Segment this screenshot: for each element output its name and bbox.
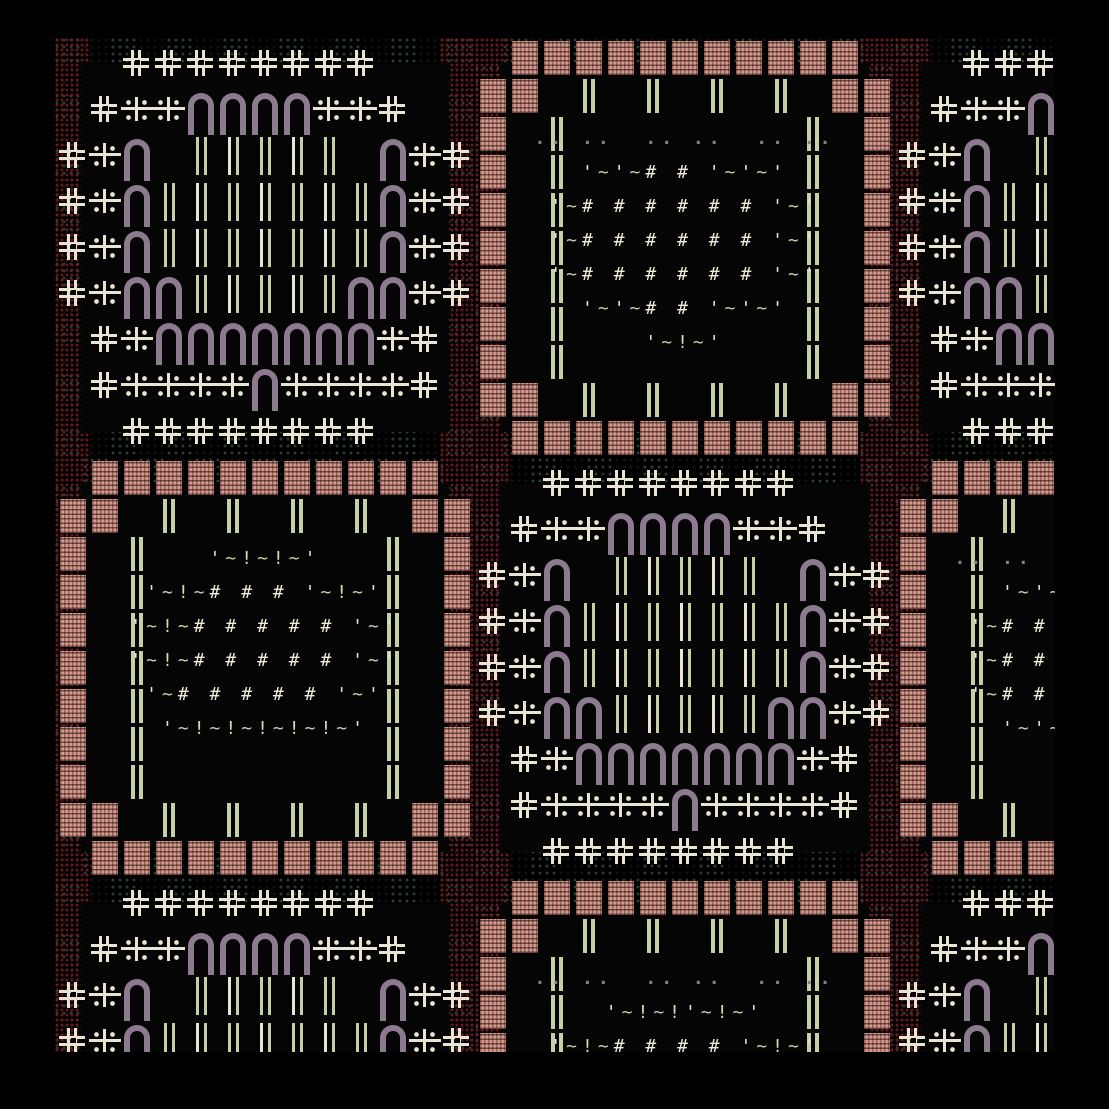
tile-hash-panel: '~!~!~''~!~# # # '~!~''~!~# # # # # '~''… xyxy=(55,458,475,878)
green-double-bar xyxy=(765,77,797,115)
pink-woven-block xyxy=(409,801,441,839)
dotted-cross-motif xyxy=(797,783,829,829)
spacer xyxy=(1025,801,1055,839)
pink-woven-block xyxy=(993,839,1025,877)
pink-woven-block xyxy=(861,77,893,115)
text-line: '~# # # # # # '~' xyxy=(923,678,1055,712)
bars-cream-motif xyxy=(217,271,249,317)
double-cross-motif xyxy=(477,645,509,691)
spacer xyxy=(861,783,893,829)
spacer xyxy=(541,77,573,115)
dotted-cross-motif xyxy=(961,87,993,133)
arch-motif xyxy=(185,87,217,133)
green-double-bar xyxy=(217,497,249,535)
bars-cream-motif xyxy=(185,225,217,271)
spacer xyxy=(797,917,829,955)
bars-cream-motif xyxy=(313,1019,345,1052)
pink-woven-block xyxy=(217,459,249,497)
spacer xyxy=(861,507,893,553)
arch-motif xyxy=(605,737,637,783)
double-cross-motif xyxy=(217,41,249,87)
double-cross-motif xyxy=(1025,409,1055,455)
pink-woven-block xyxy=(701,39,733,77)
spacer xyxy=(409,41,441,87)
text-line: '~!~!'~!~' xyxy=(503,996,867,1030)
spacer xyxy=(929,409,961,455)
bars-green-motif xyxy=(669,553,701,599)
pink-woven-block xyxy=(929,459,961,497)
double-cross-motif xyxy=(993,881,1025,927)
motif-row xyxy=(897,881,1055,927)
pink-woven-block xyxy=(637,39,669,77)
spacer xyxy=(541,917,573,955)
double-cross-motif xyxy=(345,409,377,455)
text-line: '~'~# # '~'~' xyxy=(503,292,867,326)
pink-woven-block xyxy=(929,839,961,877)
bars-green-motif xyxy=(637,645,669,691)
bars-green-motif xyxy=(701,645,733,691)
spacer xyxy=(477,879,509,917)
arch-motif xyxy=(1025,927,1055,973)
dotted-cross-motif xyxy=(121,363,153,409)
bars-cream-motif xyxy=(249,179,281,225)
double-cross-motif xyxy=(993,41,1025,87)
dotted-cross-motif xyxy=(409,179,441,225)
double-cross-motif xyxy=(477,553,509,599)
spacer xyxy=(313,497,345,535)
motif-row xyxy=(477,645,893,691)
double-cross-motif xyxy=(153,41,185,87)
double-cross-motif xyxy=(57,133,89,179)
dotted-cross-motif xyxy=(185,363,217,409)
spacer xyxy=(477,419,509,457)
bars-green-motif xyxy=(1025,133,1055,179)
double-cross-motif xyxy=(249,41,281,87)
arch-motif xyxy=(541,645,573,691)
dotted-cross-motif xyxy=(89,225,121,271)
hash-text-block: .. .. .. .. .. ..'~!~!'~!~''~!~# # # # '… xyxy=(503,962,867,1052)
pink-woven-block xyxy=(541,419,573,457)
spacer xyxy=(345,973,377,1019)
arch-motif xyxy=(637,507,669,553)
dotted-cross-motif xyxy=(573,783,605,829)
arch-motif xyxy=(377,133,409,179)
spacer xyxy=(541,381,573,419)
double-cross-motif xyxy=(477,599,509,645)
bars-cream-motif xyxy=(313,225,345,271)
pink-woven-block xyxy=(573,879,605,917)
spacer xyxy=(733,917,765,955)
spacer xyxy=(897,459,929,497)
pink-woven-block xyxy=(797,419,829,457)
pink-woven-block xyxy=(509,381,541,419)
pink-woven-block xyxy=(441,763,473,801)
spacer xyxy=(441,41,473,87)
dotted-cross-motif xyxy=(217,363,249,409)
spacer xyxy=(897,409,929,455)
pink-woven-block xyxy=(57,763,89,801)
bars-green-motif xyxy=(281,1019,313,1052)
pink-woven-block xyxy=(153,459,185,497)
double-cross-motif xyxy=(281,881,313,927)
pink-woven-block xyxy=(89,459,121,497)
tile-cross-medallion xyxy=(895,878,1055,1052)
spacer xyxy=(185,801,217,839)
motif-row xyxy=(477,77,893,115)
dotted-cross-motif xyxy=(541,783,573,829)
tile-cross-medallion xyxy=(55,878,475,1052)
arch-motif xyxy=(153,271,185,317)
motif-row xyxy=(477,783,893,829)
pink-woven-block xyxy=(961,459,993,497)
double-cross-motif xyxy=(313,409,345,455)
text-line: '~!~!~!~!~!~' xyxy=(83,712,447,746)
dotted-cross-motif xyxy=(509,645,541,691)
arch-motif xyxy=(185,317,217,363)
spacer xyxy=(57,839,89,877)
pink-woven-block xyxy=(1025,459,1055,497)
spacer xyxy=(509,829,541,875)
arch-motif xyxy=(281,317,313,363)
spacer xyxy=(733,77,765,115)
dotted-cross-motif xyxy=(377,363,409,409)
text-line: '~!~# # # # '~!~' xyxy=(503,1030,867,1052)
arch-motif xyxy=(345,317,377,363)
pink-woven-block xyxy=(765,39,797,77)
dotted-cross-motif xyxy=(929,225,961,271)
double-cross-motif xyxy=(89,363,121,409)
spacer xyxy=(669,381,701,419)
arch-motif xyxy=(797,553,829,599)
spacer xyxy=(57,927,89,973)
pink-woven-block xyxy=(961,839,993,877)
pink-woven-block xyxy=(605,419,637,457)
arch-motif xyxy=(185,927,217,973)
dotted-cross-motif xyxy=(541,737,573,783)
arch-motif xyxy=(765,737,797,783)
double-cross-motif xyxy=(345,41,377,87)
motif-row xyxy=(57,881,473,927)
motif-row xyxy=(57,87,473,133)
pink-woven-block xyxy=(57,801,89,839)
spacer xyxy=(573,553,605,599)
arch-motif xyxy=(313,317,345,363)
motif-row xyxy=(897,497,1055,535)
double-cross-motif xyxy=(733,829,765,875)
bars-green-motif xyxy=(185,973,217,1019)
bars-green-motif xyxy=(153,225,185,271)
green-double-bar xyxy=(345,497,377,535)
spacer xyxy=(345,133,377,179)
double-cross-motif xyxy=(121,409,153,455)
dotted-cross-motif xyxy=(89,1019,121,1052)
dotted-cross-motif xyxy=(313,927,345,973)
spacer xyxy=(605,381,637,419)
motif-row xyxy=(477,829,893,875)
bars-cream-motif xyxy=(313,179,345,225)
arch-motif xyxy=(377,973,409,1019)
motif-row xyxy=(897,317,1055,363)
spacer xyxy=(441,459,473,497)
text-line: '~!~# # # # # '~' xyxy=(83,644,447,678)
double-cross-motif xyxy=(897,271,929,317)
dotted-cross-motif xyxy=(733,783,765,829)
double-cross-motif xyxy=(861,599,893,645)
motif-row xyxy=(897,363,1055,409)
spacer xyxy=(441,927,473,973)
motif-row xyxy=(477,879,893,917)
pink-woven-block xyxy=(829,77,861,115)
motif-row xyxy=(57,363,473,409)
spacer xyxy=(861,737,893,783)
bars-green-motif xyxy=(573,645,605,691)
spacer xyxy=(897,881,929,927)
double-cross-motif xyxy=(377,927,409,973)
pink-woven-block xyxy=(637,879,669,917)
dotted-cross-motif xyxy=(733,507,765,553)
tile-hash-panel: .. .. .. .. .. ..'~!~!'~!~''~!~# # # # '… xyxy=(475,878,895,1052)
double-cross-motif xyxy=(409,363,441,409)
green-double-bar xyxy=(637,381,669,419)
pink-woven-block xyxy=(797,39,829,77)
spacer xyxy=(441,317,473,363)
spacer xyxy=(797,381,829,419)
arch-motif xyxy=(993,271,1025,317)
tile-cross-medallion xyxy=(55,38,475,458)
double-cross-motif xyxy=(961,409,993,455)
pink-woven-block xyxy=(409,839,441,877)
double-cross-motif xyxy=(441,271,473,317)
pink-woven-block xyxy=(573,419,605,457)
double-cross-motif xyxy=(441,225,473,271)
dotted-cross-motif xyxy=(993,363,1025,409)
motif-row xyxy=(897,179,1055,225)
pink-woven-block xyxy=(509,39,541,77)
spacer xyxy=(377,497,409,535)
pink-woven-block xyxy=(701,879,733,917)
dotted-cross-motif xyxy=(509,691,541,737)
text-line: '~# # # # # # '~' xyxy=(503,224,867,258)
spacer xyxy=(605,917,637,955)
bars-green-motif xyxy=(993,1019,1025,1052)
double-cross-motif xyxy=(829,783,861,829)
arch-motif xyxy=(541,553,573,599)
spacer xyxy=(477,737,509,783)
arch-motif xyxy=(281,87,313,133)
dotted-cross-motif xyxy=(829,553,861,599)
green-double-bar xyxy=(345,801,377,839)
bars-green-motif xyxy=(345,1019,377,1052)
arch-motif xyxy=(961,1019,993,1052)
double-cross-motif xyxy=(605,829,637,875)
green-double-bar xyxy=(573,77,605,115)
pink-woven-block xyxy=(185,839,217,877)
bars-green-motif xyxy=(733,553,765,599)
spacer xyxy=(121,801,153,839)
double-cross-motif xyxy=(929,363,961,409)
pink-woven-block xyxy=(1025,839,1055,877)
spacer xyxy=(153,763,185,801)
spacer xyxy=(797,829,829,875)
double-cross-motif xyxy=(861,691,893,737)
double-cross-motif xyxy=(377,87,409,133)
arch-motif xyxy=(733,737,765,783)
bars-green-motif xyxy=(605,691,637,737)
dotted-cross-motif xyxy=(281,363,313,409)
spacer xyxy=(377,41,409,87)
bars-cream-motif xyxy=(733,599,765,645)
motif-row xyxy=(897,801,1055,839)
spacer xyxy=(57,87,89,133)
pink-woven-block xyxy=(829,419,861,457)
green-double-bar xyxy=(765,381,797,419)
green-double-bar xyxy=(701,77,733,115)
double-cross-motif xyxy=(281,409,313,455)
bars-green-motif xyxy=(185,133,217,179)
ascii-quilt-artwork: .. .. .. .. .. ..'~'~# # '~'~''~# # # # … xyxy=(0,0,1109,1109)
pink-woven-block xyxy=(509,77,541,115)
bars-green-motif xyxy=(637,599,669,645)
arch-motif xyxy=(797,691,829,737)
arch-motif xyxy=(541,691,573,737)
spacer xyxy=(441,87,473,133)
dotted-cross-motif xyxy=(929,133,961,179)
double-cross-motif xyxy=(961,41,993,87)
double-cross-motif xyxy=(441,973,473,1019)
dotted-cross-motif xyxy=(409,1019,441,1052)
arch-motif xyxy=(701,507,733,553)
double-cross-motif xyxy=(57,973,89,1019)
spacer xyxy=(57,363,89,409)
bars-green-motif xyxy=(765,645,797,691)
bars-cream-motif xyxy=(669,599,701,645)
bars-cream-motif xyxy=(669,645,701,691)
pink-woven-block xyxy=(217,839,249,877)
spacer xyxy=(249,497,281,535)
double-cross-motif xyxy=(701,829,733,875)
motif-row xyxy=(57,497,473,535)
spacer xyxy=(477,507,509,553)
arch-motif xyxy=(153,317,185,363)
spacer xyxy=(897,927,929,973)
pink-woven-block xyxy=(477,917,509,955)
double-cross-motif xyxy=(929,927,961,973)
pink-woven-block xyxy=(313,459,345,497)
double-cross-motif xyxy=(185,881,217,927)
double-cross-motif xyxy=(89,317,121,363)
bars-cream-motif xyxy=(733,645,765,691)
dotted-cross-motif xyxy=(345,927,377,973)
double-cross-motif xyxy=(929,317,961,363)
text-line: '~!~# # # '~!~' xyxy=(83,576,447,610)
bars-green-motif xyxy=(153,179,185,225)
bars-green-motif xyxy=(701,599,733,645)
text-line: '~'~# # '~'~' xyxy=(923,576,1055,610)
green-double-bar xyxy=(281,497,313,535)
bars-cream-motif xyxy=(605,599,637,645)
arch-motif xyxy=(669,783,701,829)
bars-green-motif xyxy=(281,179,313,225)
tile-hash-panel: .. .. .. .. .. ..'~'~# # '~'~''~# # # # … xyxy=(475,38,895,458)
double-cross-motif xyxy=(441,179,473,225)
arch-motif xyxy=(573,691,605,737)
double-cross-motif xyxy=(217,409,249,455)
dotted-cross-motif xyxy=(89,133,121,179)
dotted-cross-motif xyxy=(829,645,861,691)
motif-row xyxy=(897,839,1055,877)
double-cross-motif xyxy=(249,881,281,927)
text-line: '~!~' xyxy=(923,746,1055,780)
motif-row xyxy=(477,381,893,419)
double-cross-motif xyxy=(701,461,733,507)
green-double-bar xyxy=(637,77,669,115)
dotted-cross-motif xyxy=(929,973,961,1019)
green-double-bar xyxy=(765,917,797,955)
arch-motif xyxy=(961,179,993,225)
arch-motif xyxy=(121,225,153,271)
double-cross-motif xyxy=(509,507,541,553)
motif-row xyxy=(897,927,1055,973)
arch-motif xyxy=(669,737,701,783)
pink-woven-block xyxy=(89,497,121,535)
motif-row xyxy=(57,927,473,973)
spacer xyxy=(89,41,121,87)
hash-text-block: .. .. .. .. .. ..'~'~# # '~'~''~# # # # … xyxy=(503,122,867,360)
dotted-cross-motif xyxy=(377,317,409,363)
bars-green-motif xyxy=(217,1019,249,1052)
bars-cream-motif xyxy=(281,973,313,1019)
green-double-bar xyxy=(993,801,1025,839)
motif-row xyxy=(57,225,473,271)
motif-row xyxy=(477,737,893,783)
dotted-cross-motif xyxy=(961,363,993,409)
green-double-bar xyxy=(153,801,185,839)
dotted-cross-motif xyxy=(313,87,345,133)
green-double-bar xyxy=(377,763,409,801)
pink-woven-block xyxy=(121,459,153,497)
spacer xyxy=(961,801,993,839)
arch-motif xyxy=(1025,87,1055,133)
motif-row xyxy=(897,973,1055,1019)
double-cross-motif xyxy=(509,737,541,783)
spacer xyxy=(441,881,473,927)
pink-woven-block xyxy=(897,801,929,839)
dotted-cross-motif xyxy=(345,87,377,133)
spacer xyxy=(153,133,185,179)
double-cross-motif xyxy=(829,737,861,783)
dotted-cross-motif xyxy=(409,973,441,1019)
double-cross-motif xyxy=(897,225,929,271)
bars-green-motif xyxy=(993,179,1025,225)
dotted-cross-motif xyxy=(153,927,185,973)
pink-woven-block xyxy=(477,381,509,419)
pink-woven-block xyxy=(249,839,281,877)
bars-cream-motif xyxy=(1025,225,1055,271)
pink-woven-block xyxy=(541,39,573,77)
green-double-bar xyxy=(281,801,313,839)
tile-cross-medallion xyxy=(475,458,895,878)
dotted-cross-motif xyxy=(993,87,1025,133)
double-cross-motif xyxy=(573,829,605,875)
motif-row xyxy=(897,271,1055,317)
pink-woven-block xyxy=(765,879,797,917)
pink-woven-block xyxy=(701,419,733,457)
double-cross-motif xyxy=(89,927,121,973)
bars-cream-motif xyxy=(701,691,733,737)
spacer xyxy=(409,87,441,133)
pink-woven-block xyxy=(345,459,377,497)
bars-cream-motif xyxy=(605,645,637,691)
